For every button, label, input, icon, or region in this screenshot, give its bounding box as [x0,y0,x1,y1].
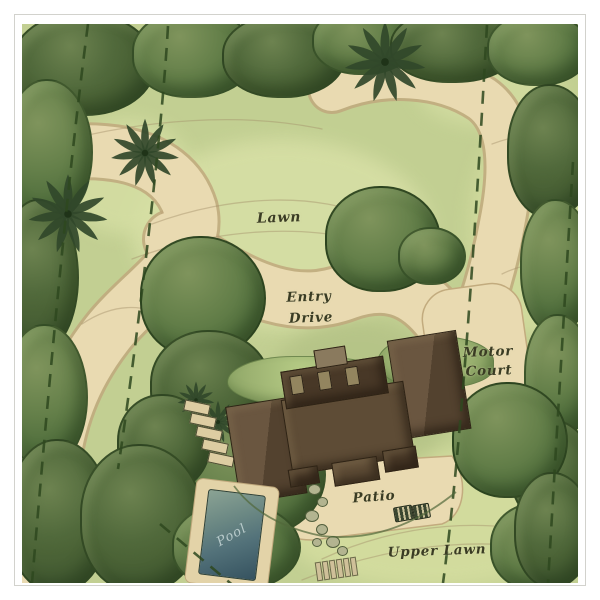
tree-canopy [507,84,578,218]
palm-tree-icon [25,171,111,257]
palm-tree-icon [108,116,182,190]
dormer [317,370,333,391]
label-motor-court-line1: Motor [463,343,514,361]
dormer [289,375,305,396]
label-pool: Pool [214,521,249,550]
palm-tree-icon [341,24,429,106]
boulder [312,538,322,547]
label-lawn: Lawn [257,209,302,227]
boulder [326,536,340,548]
site-plan: Pool Lawn Entry Drive Motor Court Patio … [22,24,578,583]
tree-canopy [487,24,578,86]
pool: Pool [198,489,266,581]
pool-deck: Pool [184,477,280,583]
label-entry-drive-line1: Entry [286,288,332,306]
dormer [344,366,360,387]
boulder [317,497,328,507]
tree-canopy [514,472,578,583]
tree-canopy [520,199,578,333]
screenshot-root: { "title": "Residential landscape site p… [0,0,600,600]
tree-canopy [398,227,466,285]
label-entry-drive-line2: Drive [289,309,334,327]
boulder [337,546,348,556]
boulder [316,524,328,535]
label-motor-court-line2: Court [465,362,512,380]
boulder [305,510,319,522]
label-patio: Patio [352,488,396,507]
lounge-chair [412,503,431,521]
boulder [308,484,321,495]
house-bay-right [382,446,419,473]
